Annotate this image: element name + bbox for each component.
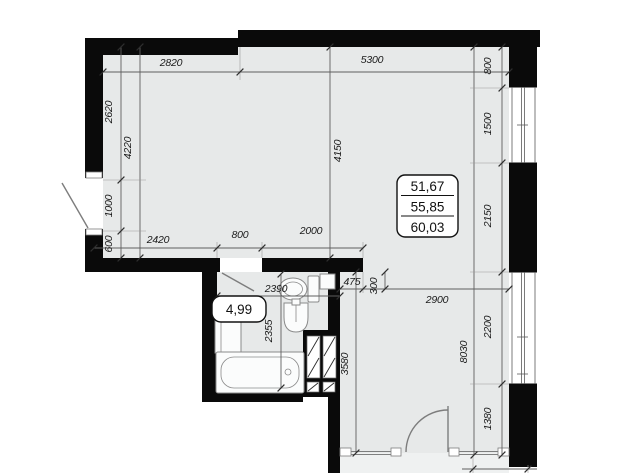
hall-wall-left-segment — [85, 258, 220, 272]
entrance-door-leaf — [62, 183, 88, 228]
washing-machine-icon — [215, 320, 241, 353]
window-sill — [449, 448, 459, 456]
right-wall-top — [509, 30, 537, 87]
ventilation-shaft — [303, 330, 340, 397]
dim-left-door: 1000 — [103, 194, 115, 217]
window-lower-opening — [509, 272, 537, 384]
dim-right-s2: 1500 — [482, 112, 494, 135]
left-wall-upper — [85, 38, 103, 178]
dim-top-right: 5300 — [361, 54, 384, 66]
dim-left-lower: 600 — [103, 235, 115, 252]
dim-hall-wall: 2420 — [146, 234, 170, 246]
sink-icon — [284, 299, 308, 332]
bathroom-area-value: 4,99 — [226, 302, 252, 317]
hall-wall-right-segment — [262, 258, 363, 272]
door-frame-top — [86, 172, 102, 178]
dim-right-s1: 800 — [482, 57, 494, 74]
right-wall-middle — [509, 163, 537, 272]
area-total-value: 60,03 — [411, 220, 445, 235]
window-sill — [391, 448, 401, 456]
dim-left-overall: 4220 — [122, 136, 134, 159]
floor-plan-drawing: 2820 5300 2620 1000 600 4220 4150 800 15… — [0, 0, 640, 473]
window-lower — [509, 272, 537, 384]
entrance-door — [62, 172, 102, 235]
top-wall-left — [85, 38, 238, 55]
dim-right-s4: 2200 — [482, 315, 494, 339]
dim-top-left: 2820 — [159, 57, 183, 69]
shaft-panel — [323, 336, 336, 378]
area-living-value: 51,67 — [411, 179, 445, 194]
window-sill — [498, 448, 509, 456]
kitchen-left-wall — [328, 397, 340, 473]
window-sill — [340, 448, 351, 456]
dim-hall-wall2: 2000 — [299, 225, 323, 237]
right-wall-bottom — [509, 384, 537, 467]
top-wall-right — [238, 30, 540, 47]
shaft-panel — [307, 336, 320, 378]
area-usable-value: 55,85 — [411, 200, 445, 215]
dim-hall-door: 800 — [232, 229, 249, 241]
dim-right-s3: 2150 — [482, 204, 494, 228]
dim-nook: 475 — [344, 276, 361, 288]
dim-right-s5: 1380 — [482, 407, 494, 430]
floor-plan: 2820 5300 2620 1000 600 4220 4150 800 15… — [0, 0, 640, 473]
balcony-strip-floor — [340, 453, 509, 473]
door-frame-bottom — [86, 229, 102, 235]
dim-left-upper: 2620 — [103, 100, 115, 124]
bathtub-icon — [216, 352, 304, 393]
dim-living-height: 4150 — [332, 139, 344, 162]
bathroom-area-label: 4,99 — [212, 296, 266, 322]
dim-bath-depth: 2355 — [263, 319, 275, 343]
area-table: 51,67 55,85 60,03 — [397, 175, 458, 237]
dim-kitchen-width: 2900 — [425, 294, 449, 306]
dim-right-overall: 8030 — [458, 340, 470, 363]
dim-bath-width: 2390 — [264, 283, 288, 295]
dim-offset: 300 — [368, 277, 380, 294]
boiler-icon — [320, 274, 335, 289]
dim-kitchen-depth: 3580 — [339, 352, 351, 375]
window-upper — [509, 87, 537, 163]
